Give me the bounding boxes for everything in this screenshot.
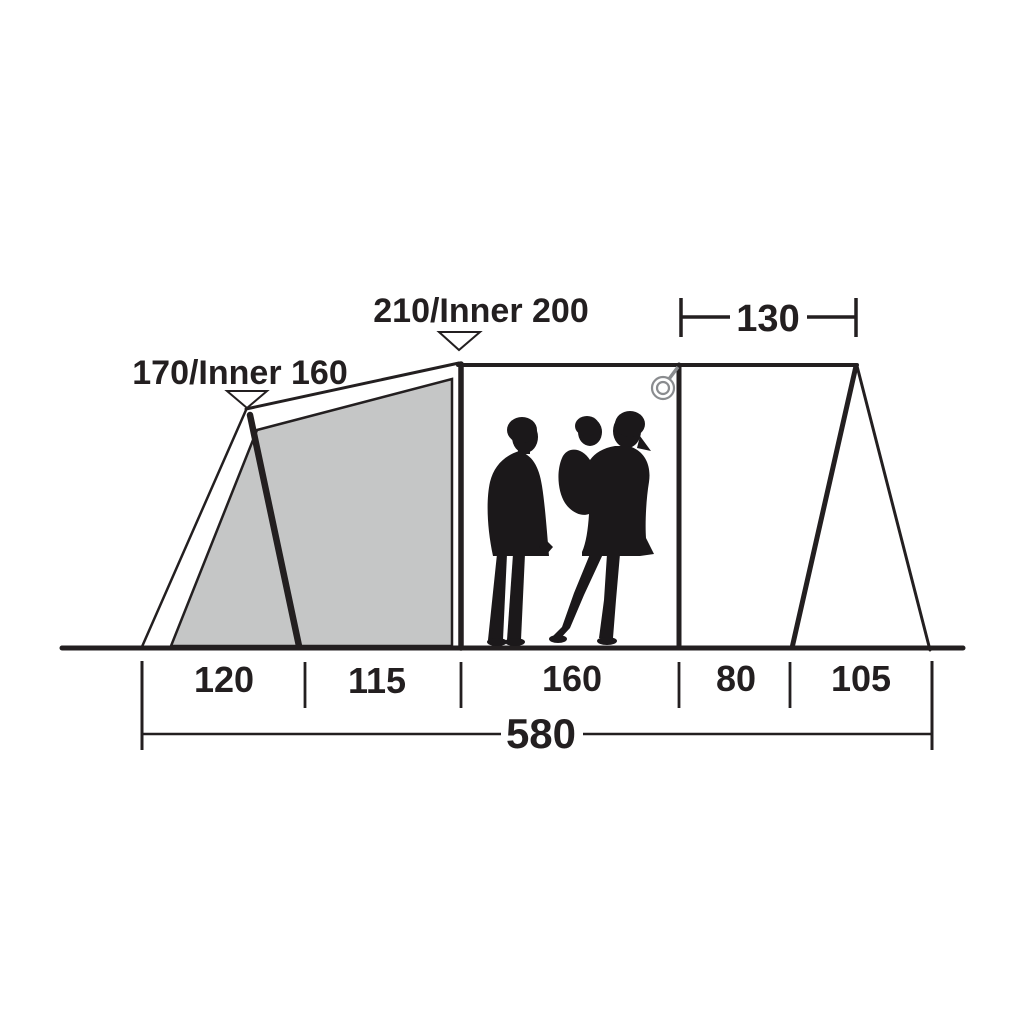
total-width-label: 580 bbox=[506, 710, 576, 757]
height-annotations: 210/Inner 200 170/Inner 160 bbox=[132, 292, 588, 408]
tent-dimension-diagram: 210/Inner 200 170/Inner 160 130 120 115 … bbox=[0, 0, 1024, 1024]
segment-label-5: 105 bbox=[831, 658, 891, 699]
adult-figure-left bbox=[487, 417, 553, 646]
dimension-580: 580 bbox=[142, 708, 932, 758]
segment-label-1: 120 bbox=[194, 659, 254, 700]
bedroom-panel bbox=[171, 379, 452, 646]
adult-with-child-figure bbox=[549, 411, 654, 645]
diagram-canvas: 210/Inner 200 170/Inner 160 130 120 115 … bbox=[0, 0, 1024, 1024]
rear-width-label: 130 bbox=[736, 298, 799, 340]
family-silhouette bbox=[487, 411, 654, 646]
down-arrow-icon-main bbox=[439, 332, 480, 350]
front-height-label: 170/Inner 160 bbox=[132, 354, 347, 392]
hanging-ring-icon bbox=[652, 367, 678, 399]
segment-label-4: 80 bbox=[716, 658, 756, 699]
segment-label-3: 160 bbox=[542, 658, 602, 699]
segment-label-2: 115 bbox=[348, 660, 406, 701]
main-height-label: 210/Inner 200 bbox=[373, 292, 588, 330]
dimension-130: 130 bbox=[681, 295, 856, 340]
rear-guy-line bbox=[857, 366, 930, 650]
rear-pole bbox=[792, 366, 856, 648]
